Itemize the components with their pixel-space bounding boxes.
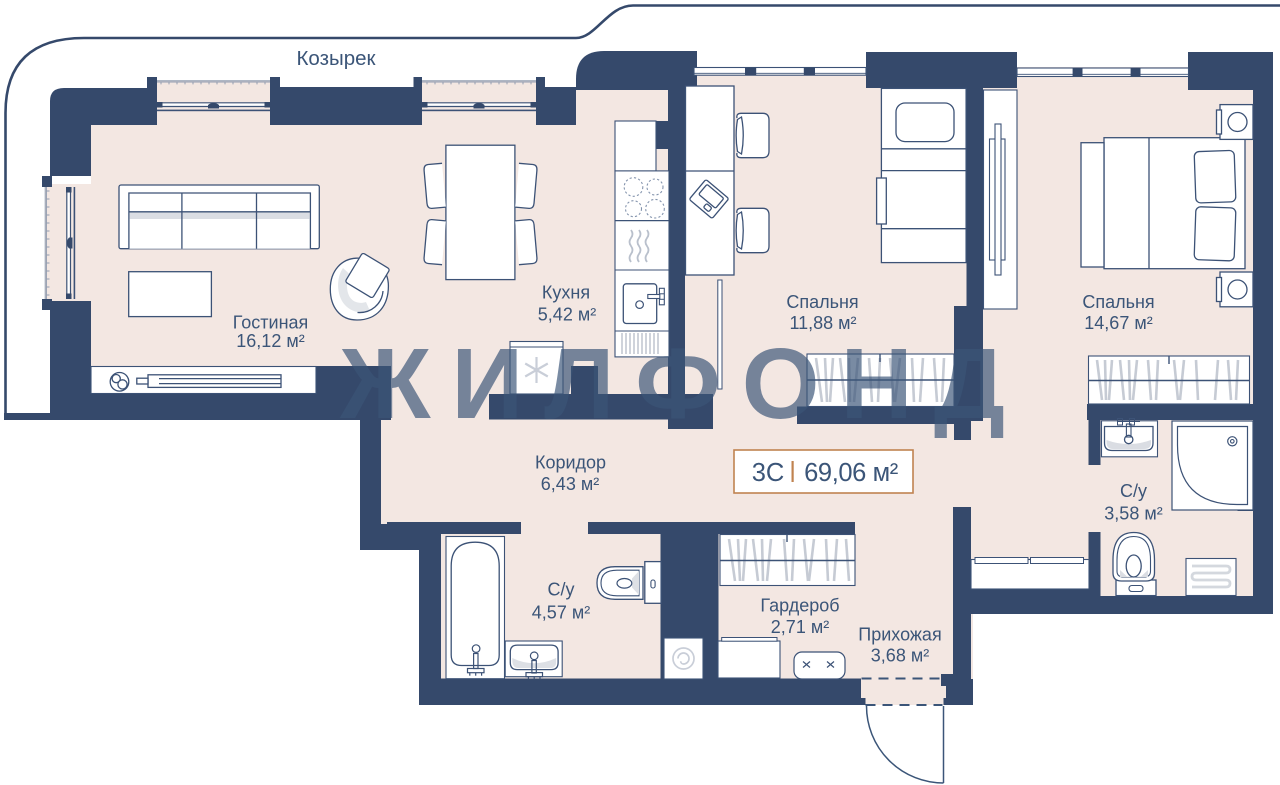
svg-text:6,43 м²: 6,43 м² [541, 474, 599, 494]
svg-text:3,58 м²: 3,58 м² [1104, 504, 1162, 524]
svg-text:Гостиная: Гостиная [233, 313, 309, 333]
svg-text:С/у: С/у [1120, 481, 1147, 501]
svg-text:Коридор: Коридор [535, 453, 606, 473]
svg-text:С/у: С/у [548, 580, 575, 600]
svg-text:14,67 м²: 14,67 м² [1084, 313, 1152, 333]
svg-text:Спальня: Спальня [1082, 292, 1154, 312]
svg-text:ЖИЛФОНД: ЖИЛФОНД [339, 328, 1026, 440]
svg-text:Кухня: Кухня [542, 283, 590, 303]
svg-text:4,57 м²: 4,57 м² [532, 603, 590, 623]
svg-text:3С: 3С [752, 459, 785, 487]
svg-text:2,71 м²: 2,71 м² [771, 617, 829, 637]
svg-text:16,12 м²: 16,12 м² [236, 331, 304, 351]
svg-text:Спальня: Спальня [786, 292, 858, 312]
svg-text:Прихожая: Прихожая [858, 625, 941, 645]
svg-text:69,06 м²: 69,06 м² [804, 459, 898, 487]
svg-text:3,68 м²: 3,68 м² [871, 646, 929, 666]
svg-text:Гардероб: Гардероб [760, 596, 839, 616]
svg-text:5,42 м²: 5,42 м² [538, 305, 596, 325]
svg-text:Козырек: Козырек [296, 47, 376, 70]
